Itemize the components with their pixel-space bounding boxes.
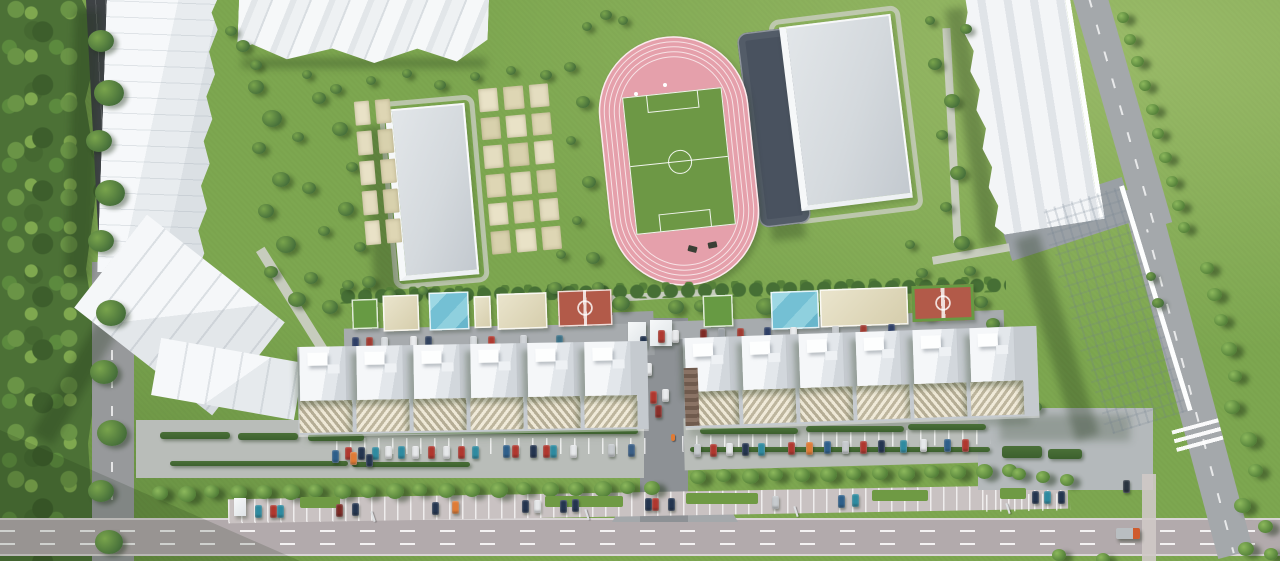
- car: [543, 445, 550, 458]
- bush: [236, 40, 250, 52]
- tree: [1214, 314, 1228, 326]
- bench: [707, 241, 717, 249]
- tower-section: [912, 329, 958, 385]
- tree: [282, 484, 300, 500]
- tree: [1117, 12, 1129, 23]
- tree: [1159, 152, 1172, 163]
- bush: [950, 166, 966, 180]
- bush: [318, 226, 330, 236]
- tree: [644, 481, 660, 495]
- car: [962, 439, 969, 452]
- garden-plot: [538, 197, 559, 221]
- sport-court: [911, 284, 974, 322]
- car: [358, 447, 365, 460]
- car: [668, 498, 675, 511]
- car: [672, 330, 679, 343]
- bush: [576, 96, 590, 108]
- hedge-row: [908, 424, 986, 430]
- tree: [438, 483, 455, 498]
- car: [944, 439, 951, 452]
- hedge-row: [308, 434, 364, 441]
- tower-section: [299, 346, 346, 401]
- car: [443, 446, 450, 459]
- tree: [1224, 400, 1240, 414]
- terrace-section: [970, 380, 1024, 416]
- tree: [594, 481, 612, 497]
- bush: [1152, 298, 1164, 308]
- bush: [88, 30, 114, 52]
- car: [350, 452, 357, 465]
- tree: [794, 468, 810, 482]
- hedge-row: [1048, 449, 1082, 459]
- terrace-section: [527, 396, 581, 429]
- garden-plot: [483, 145, 504, 169]
- grass-median: [872, 490, 928, 501]
- garden-plot: [383, 188, 400, 213]
- sport-court: [428, 291, 469, 330]
- garden-plot: [508, 143, 529, 167]
- car: [878, 440, 885, 453]
- car: [522, 500, 529, 513]
- bush: [470, 72, 480, 81]
- tree: [1172, 200, 1185, 211]
- street-light: [370, 511, 375, 522]
- tree: [820, 467, 837, 482]
- tree: [924, 465, 939, 478]
- sport-court: [557, 289, 612, 327]
- grass-median: [545, 496, 623, 507]
- garden-plot-grid: [476, 81, 565, 257]
- tree: [1152, 128, 1164, 139]
- tree: [1234, 498, 1251, 513]
- tree: [742, 469, 759, 484]
- tree: [464, 483, 480, 497]
- bush: [916, 268, 928, 278]
- bush: [90, 360, 118, 384]
- pedestrian: [671, 434, 675, 441]
- terrace-section: [413, 398, 467, 431]
- bush: [618, 16, 628, 25]
- car: [1032, 491, 1039, 504]
- car: [726, 443, 733, 456]
- car: [662, 389, 669, 402]
- grass-median: [686, 493, 758, 504]
- street-light: [584, 509, 589, 520]
- car: [900, 440, 907, 453]
- tree: [542, 482, 559, 497]
- garden-plot: [511, 171, 532, 195]
- tree: [1200, 262, 1214, 274]
- car: [366, 454, 373, 467]
- tree: [768, 468, 783, 481]
- bush: [564, 62, 576, 72]
- car: [572, 499, 579, 512]
- tree: [1060, 474, 1074, 486]
- truck: [1116, 528, 1140, 539]
- terrace-section: [913, 382, 967, 418]
- bush: [905, 240, 915, 249]
- car: [503, 445, 510, 458]
- garden-plot: [364, 220, 381, 245]
- bush: [264, 266, 278, 278]
- kiosk: [234, 498, 246, 516]
- bush: [960, 24, 972, 34]
- sport-court: [496, 292, 547, 330]
- tree: [1124, 34, 1136, 45]
- tree: [360, 484, 376, 498]
- garden-plot: [362, 190, 379, 215]
- tree: [716, 469, 731, 482]
- aerial-masterplan-render: [0, 0, 1280, 561]
- tree: [1264, 548, 1278, 560]
- bush: [288, 292, 306, 307]
- terrace-section: [584, 395, 638, 428]
- tree: [690, 470, 706, 484]
- bush: [322, 300, 338, 314]
- garden-plot: [478, 88, 499, 112]
- bush: [362, 276, 376, 288]
- tree: [1228, 370, 1242, 382]
- garden-plot: [375, 99, 392, 124]
- tree: [1248, 464, 1263, 477]
- car: [694, 444, 701, 457]
- car: [412, 446, 419, 459]
- car: [432, 502, 439, 515]
- garden-plot: [354, 101, 371, 126]
- garden-plot: [513, 200, 534, 224]
- bush: [944, 94, 960, 108]
- bush: [402, 69, 412, 78]
- car: [650, 391, 657, 404]
- bush: [302, 182, 316, 194]
- grass-median: [1000, 488, 1026, 499]
- car: [385, 446, 392, 459]
- car: [1058, 491, 1065, 504]
- tree: [412, 483, 427, 496]
- tree: [1240, 432, 1257, 447]
- tower-section: [413, 344, 460, 399]
- tree: [256, 485, 272, 499]
- car: [255, 505, 262, 518]
- bush: [97, 420, 127, 446]
- bush: [936, 130, 948, 140]
- tree: [1166, 176, 1178, 187]
- bush: [540, 70, 552, 80]
- car: [472, 446, 479, 459]
- garden-plot: [531, 112, 552, 136]
- tree: [1036, 471, 1050, 483]
- bush: [304, 272, 318, 284]
- bush: [95, 530, 123, 554]
- car: [658, 330, 665, 343]
- bush: [434, 80, 446, 90]
- sport-court: [473, 296, 491, 329]
- car: [428, 446, 435, 459]
- bush: [94, 80, 124, 106]
- car: [277, 505, 284, 518]
- residential-slab: [297, 341, 648, 435]
- car: [852, 494, 859, 507]
- hedge-row: [238, 433, 298, 440]
- bush: [940, 202, 952, 212]
- car: [560, 500, 567, 513]
- car: [842, 441, 849, 454]
- tree: [976, 464, 993, 479]
- tree: [1131, 56, 1144, 67]
- hedge-row: [1002, 446, 1042, 458]
- sport-court: [702, 294, 733, 327]
- tree: [1096, 553, 1110, 561]
- car: [655, 405, 662, 418]
- bush: [556, 250, 566, 259]
- garden-plot: [528, 83, 549, 107]
- bush: [312, 92, 326, 104]
- car: [372, 447, 379, 460]
- bush: [586, 252, 600, 264]
- bush: [668, 300, 684, 314]
- garden-plot: [541, 226, 562, 250]
- garden-plot: [506, 114, 527, 138]
- tree: [950, 465, 966, 479]
- bush: [925, 16, 935, 25]
- bush: [95, 180, 125, 206]
- garden-plot: [536, 169, 557, 193]
- bush: [928, 58, 942, 70]
- car: [742, 443, 749, 456]
- tower-section: [356, 345, 403, 400]
- hedge-row: [806, 426, 904, 432]
- bush: [954, 236, 970, 250]
- bush: [566, 136, 576, 145]
- car: [710, 444, 717, 457]
- tree: [1221, 342, 1237, 356]
- tower-section: [742, 335, 788, 391]
- terrace-section: [799, 386, 853, 422]
- sport-court: [770, 290, 819, 330]
- sport-court: [351, 299, 378, 330]
- bush: [292, 132, 304, 142]
- bush: [88, 230, 114, 252]
- bush: [250, 60, 262, 70]
- bush: [582, 22, 592, 31]
- tower-section: [584, 341, 631, 396]
- terrace-section: [856, 384, 910, 420]
- hedge-row: [160, 432, 230, 439]
- garden-plot: [380, 158, 397, 183]
- bush: [332, 122, 348, 136]
- tree: [1012, 468, 1026, 480]
- sport-court: [819, 286, 908, 327]
- car: [534, 500, 541, 513]
- garden-plot: [480, 116, 501, 140]
- car: [860, 441, 867, 454]
- tree: [1238, 542, 1254, 556]
- car: [550, 445, 557, 458]
- tree: [1052, 549, 1066, 561]
- car: [452, 501, 459, 514]
- bush: [302, 70, 312, 79]
- car: [332, 450, 339, 463]
- car: [530, 445, 537, 458]
- bush: [572, 216, 582, 225]
- terrace-section: [470, 397, 524, 430]
- field-marker-dot: [663, 83, 667, 87]
- tree: [1139, 80, 1151, 91]
- tower-section: [798, 333, 844, 389]
- car: [645, 498, 652, 511]
- bush: [366, 76, 376, 85]
- bush: [338, 202, 354, 216]
- tree: [1146, 104, 1159, 115]
- tree: [516, 482, 531, 495]
- car: [608, 444, 615, 457]
- garden-plot: [488, 202, 509, 226]
- bush: [342, 280, 354, 290]
- garden-plot: [516, 228, 537, 252]
- tree: [386, 483, 404, 499]
- car: [458, 446, 465, 459]
- tree: [308, 484, 323, 497]
- field-marker-dot: [634, 92, 638, 96]
- bench: [687, 245, 697, 253]
- tree: [898, 466, 915, 481]
- tree: [490, 482, 508, 498]
- bush: [225, 26, 237, 36]
- tower-section: [855, 331, 901, 387]
- car: [788, 442, 795, 455]
- bush: [258, 204, 274, 218]
- bush: [1146, 272, 1156, 281]
- street-light: [1005, 503, 1010, 514]
- bush: [582, 176, 596, 188]
- building-end-facade: [684, 368, 700, 426]
- bush: [330, 84, 342, 94]
- bush: [96, 300, 126, 326]
- tree: [872, 466, 888, 480]
- tower-section: [527, 342, 574, 397]
- hedge-row: [170, 461, 348, 466]
- bush: [248, 80, 264, 94]
- terrace-section: [742, 388, 796, 424]
- hedge-row: [700, 428, 798, 434]
- car: [352, 503, 359, 516]
- terrace-section: [356, 399, 410, 432]
- garden-plot-grid: [352, 97, 405, 248]
- bush: [86, 130, 112, 152]
- garden-plot: [356, 130, 373, 155]
- bush: [418, 286, 428, 295]
- bush: [88, 480, 114, 502]
- bush: [252, 142, 266, 154]
- tree: [1258, 520, 1273, 533]
- car: [570, 445, 577, 458]
- grass-median: [300, 497, 340, 508]
- car: [838, 495, 845, 508]
- tree: [620, 481, 635, 494]
- garden-plot: [385, 218, 402, 243]
- bush: [600, 10, 612, 20]
- car: [652, 498, 659, 511]
- garden-plot: [485, 173, 506, 197]
- car: [336, 504, 343, 517]
- bush: [272, 172, 290, 187]
- garden-plot: [359, 160, 376, 185]
- residential-slab: [683, 326, 1040, 428]
- car: [398, 446, 405, 459]
- car: [824, 441, 831, 454]
- garden-plot: [503, 85, 524, 109]
- bush: [612, 296, 630, 311]
- bush: [506, 66, 516, 75]
- tree: [152, 486, 168, 500]
- tree: [568, 482, 584, 496]
- car: [758, 443, 765, 456]
- car: [920, 439, 927, 452]
- tower-section: [470, 343, 517, 398]
- sport-court: [382, 294, 419, 331]
- tower-section: [969, 327, 1015, 383]
- street-light: [793, 506, 798, 517]
- car: [806, 442, 813, 455]
- garden-plot: [533, 140, 554, 164]
- car: [772, 496, 779, 509]
- terrace-section: [299, 400, 353, 433]
- garden-plot: [490, 230, 511, 254]
- tree: [1178, 222, 1190, 233]
- tree: [846, 467, 861, 480]
- car: [628, 444, 635, 457]
- sprite-layer: [0, 0, 1280, 561]
- car: [512, 445, 519, 458]
- bush: [974, 296, 988, 308]
- car: [1044, 491, 1051, 504]
- garden-plot: [377, 129, 394, 154]
- tree: [204, 485, 219, 498]
- car: [270, 505, 277, 518]
- tree: [178, 486, 196, 502]
- tree: [1207, 288, 1222, 301]
- bush: [964, 266, 976, 276]
- car: [1123, 480, 1130, 493]
- bush: [262, 110, 282, 127]
- bush: [276, 236, 296, 253]
